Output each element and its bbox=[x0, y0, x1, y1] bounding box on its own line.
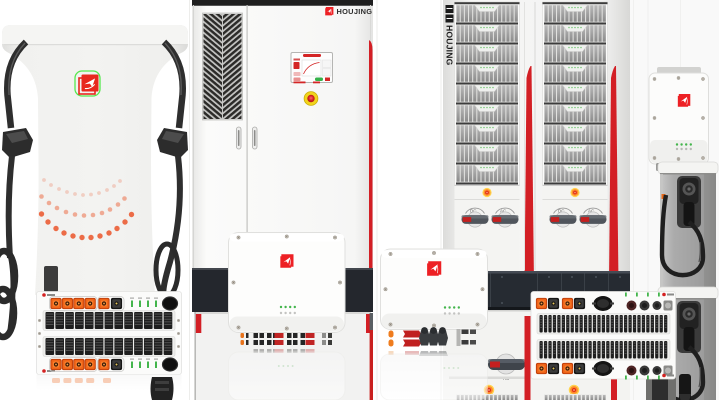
svg-text:HOUJING: HOUJING bbox=[445, 25, 455, 66]
svg-text:HOUJING: HOUJING bbox=[337, 7, 373, 16]
